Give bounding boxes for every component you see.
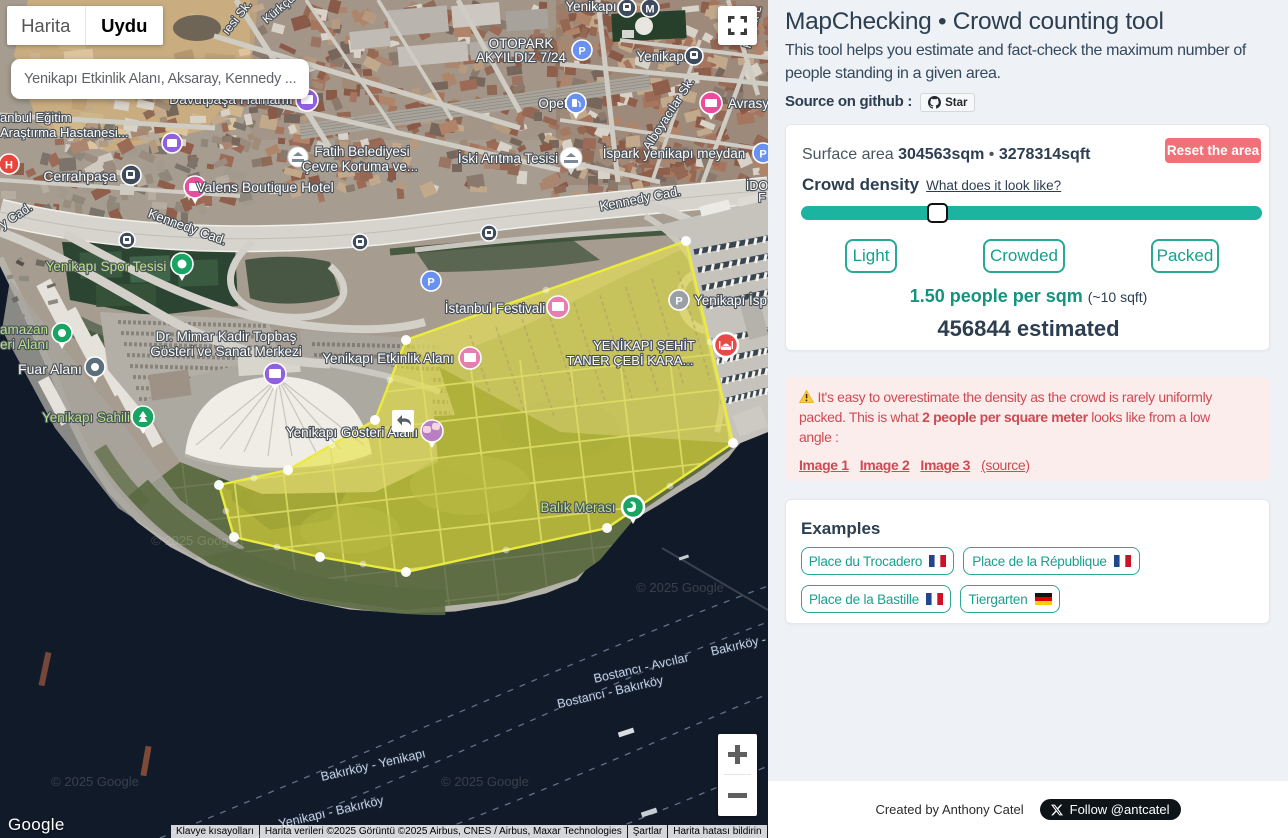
- svg-text:Fatih Belediyesi: Fatih Belediyesi: [314, 144, 409, 159]
- svg-text:H: H: [5, 160, 13, 172]
- svg-text:İstanbul Festivali: İstanbul Festivali: [445, 301, 546, 316]
- svg-text:Avrasy: Avrasy: [728, 96, 768, 111]
- svg-text:Cerrahpaşa: Cerrahpaşa: [43, 168, 116, 184]
- svg-text:Opet: Opet: [538, 96, 568, 111]
- svg-text:Yenikapı: Yenikapı: [636, 49, 687, 64]
- svg-text:eri Alanı: eri Alanı: [0, 337, 49, 352]
- svg-text:Yenikapı Spor Tesisi: Yenikapı Spor Tesisi: [46, 259, 167, 274]
- svg-text:Yenikapı Sahili: Yenikapı Sahili: [42, 410, 130, 425]
- svg-text:© 2025 Google: © 2025 Google: [51, 774, 139, 789]
- svg-text:İspark yenikapı meydan: İspark yenikapı meydan: [603, 146, 746, 161]
- svg-text:P: P: [427, 277, 434, 289]
- svg-text:© 2025 Google: © 2025 Google: [151, 533, 239, 548]
- svg-text:© 2025 Google: © 2025 Google: [441, 774, 529, 789]
- svg-text:P: P: [578, 46, 585, 58]
- svg-text:F: F: [758, 191, 766, 205]
- svg-text:AKYILDIZ 7/24: AKYILDIZ 7/24: [476, 50, 567, 65]
- svg-text:Yenikapı Etkinlik Alanı: Yenikapı Etkinlik Alanı: [322, 351, 454, 366]
- svg-text:Yenikapı İsp: Yenikapı İsp: [694, 293, 767, 308]
- svg-text:Gösteri ve Sanat Merkezi: Gösteri ve Sanat Merkezi: [150, 344, 302, 359]
- svg-text:© 2025 Google: © 2025 Google: [636, 580, 724, 595]
- svg-text:P: P: [759, 149, 766, 161]
- svg-text:Yenikapı: Yenikapı: [565, 0, 616, 14]
- svg-text:Valens Boutique Hotel: Valens Boutique Hotel: [196, 179, 334, 195]
- svg-text:anbul Eğitim: anbul Eğitim: [0, 110, 72, 125]
- svg-text:Çevre Koruma ve...: Çevre Koruma ve...: [302, 159, 418, 174]
- svg-text:Balık Merası: Balık Merası: [540, 500, 615, 515]
- svg-text:OTOPARK: OTOPARK: [489, 36, 554, 51]
- svg-text:Dr. Mimar Kadir Topbaş: Dr. Mimar Kadir Topbaş: [156, 329, 297, 344]
- svg-text:İski Arıtma Tesisi: İski Arıtma Tesisi: [458, 151, 558, 166]
- svg-text:TANER ÇEBİ KARA...: TANER ÇEBİ KARA...: [567, 353, 694, 368]
- svg-text:Araştırma Hastanesi...: Araştırma Hastanesi...: [0, 125, 129, 140]
- svg-text:M: M: [645, 4, 654, 16]
- svg-text:P: P: [675, 296, 682, 308]
- svg-text:YENİKAPI ŞEHİT: YENİKAPI ŞEHİT: [593, 338, 695, 353]
- svg-text:Fuar Alanı: Fuar Alanı: [18, 361, 82, 377]
- svg-text:amazan: amazan: [0, 322, 48, 337]
